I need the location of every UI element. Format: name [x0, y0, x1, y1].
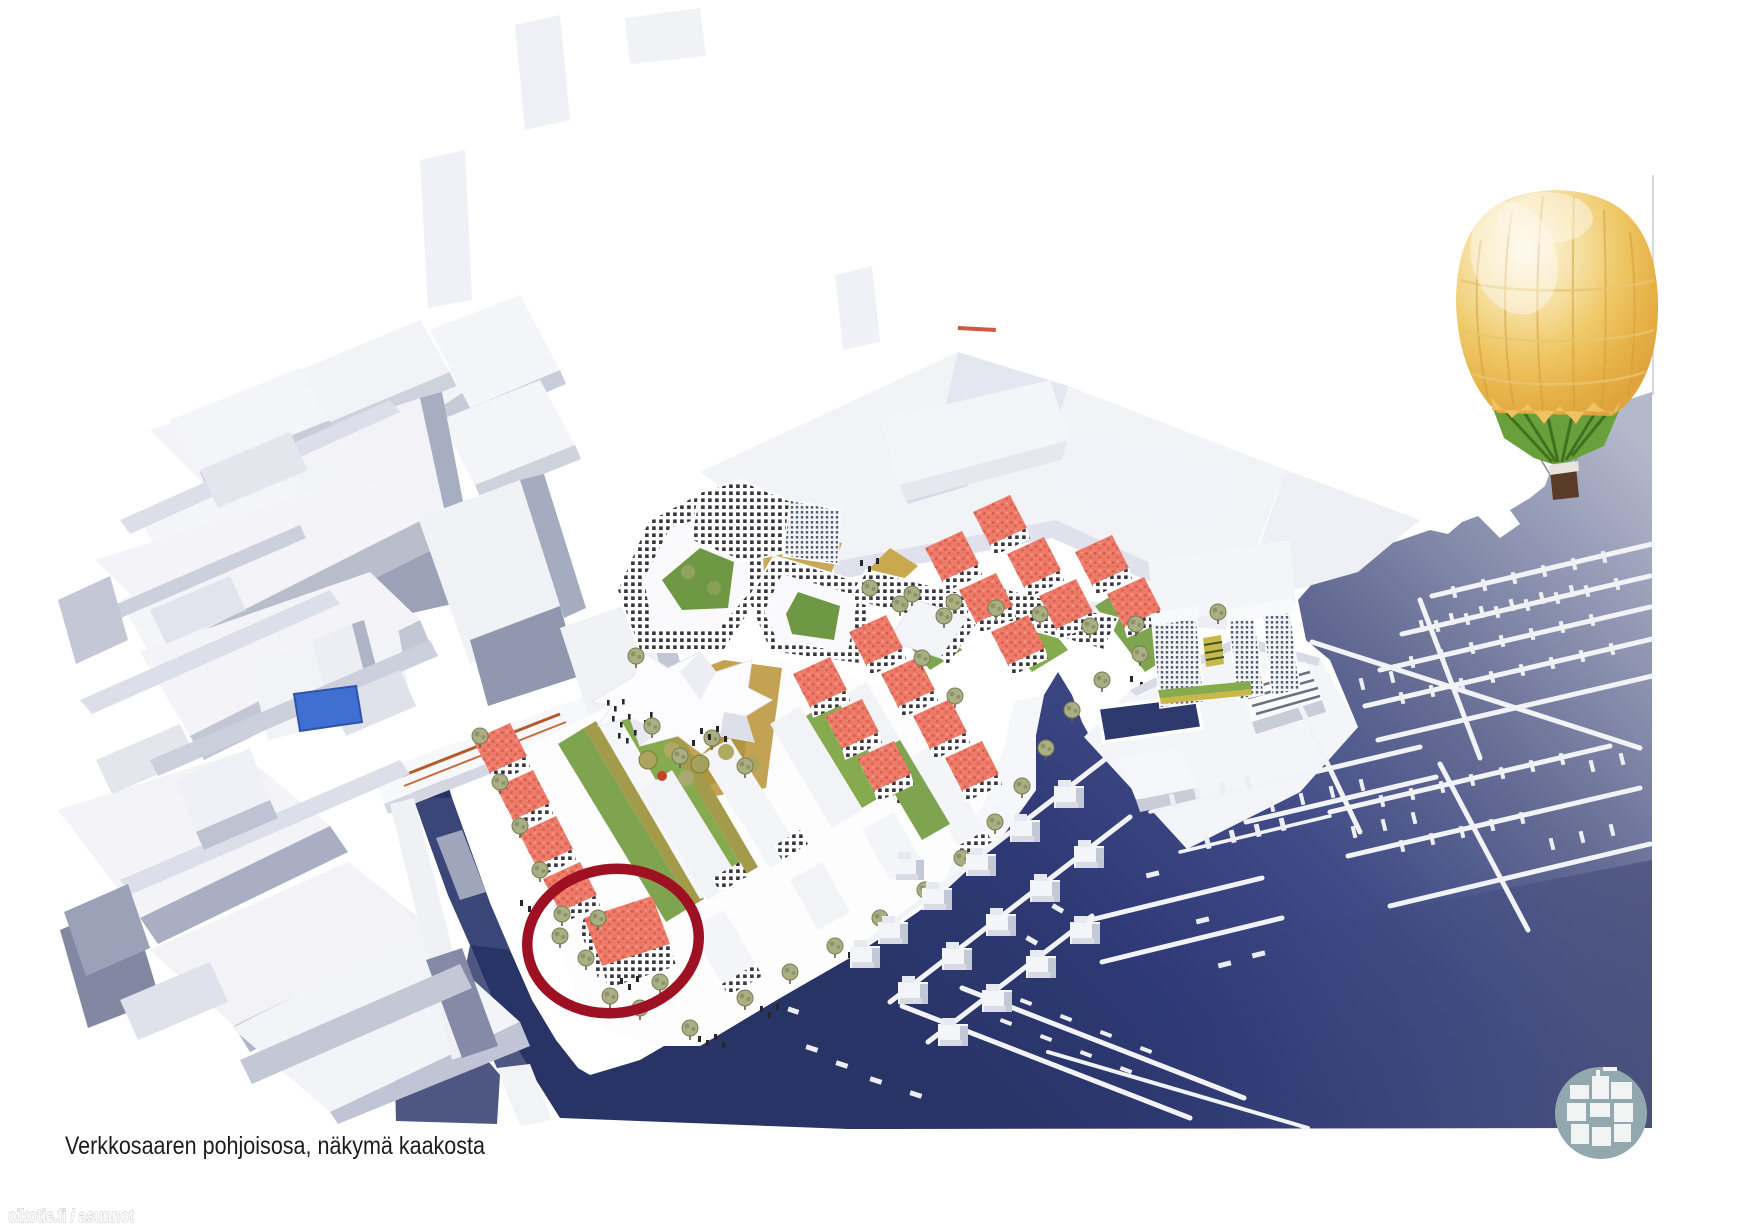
svg-text:Verkkosaaren pohjoisosa, näkym: Verkkosaaren pohjoisosa, näkymä kaakosta [65, 1132, 485, 1160]
svg-text:oikotie.fi / asunnot: oikotie.fi / asunnot [8, 1206, 134, 1226]
